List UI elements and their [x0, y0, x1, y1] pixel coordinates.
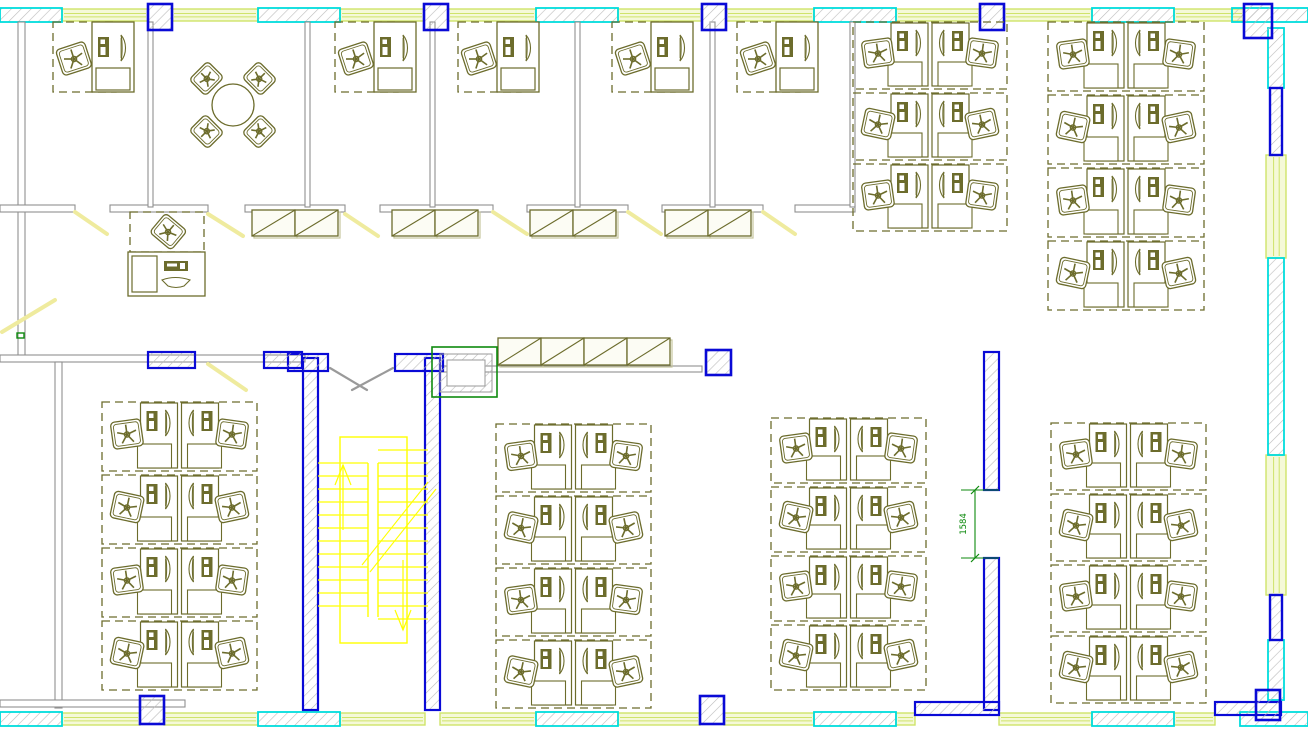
workstation-cluster-3 — [102, 402, 257, 690]
pc-tower-icon — [1093, 104, 1104, 124]
pc-tower-icon — [871, 496, 882, 516]
office-workstation-5 — [737, 22, 818, 92]
office-chair-icon — [1162, 185, 1195, 216]
door-leaf — [352, 368, 393, 390]
office-chair-icon — [1056, 111, 1091, 144]
exterior-wall-pier — [0, 712, 62, 726]
dimension-text: 1584 — [959, 513, 969, 535]
pc-tower-icon — [1096, 432, 1107, 452]
office-workstation-3 — [458, 22, 539, 92]
office-chair-icon — [1162, 39, 1195, 70]
floor-plan-drawing: 1584 — [0, 0, 1308, 736]
storage-cabinet-row — [498, 338, 672, 367]
window-glazing — [164, 713, 258, 725]
pc-tower-icon — [596, 505, 607, 525]
pc-tower-icon — [202, 484, 213, 504]
pc-tower-icon — [1096, 574, 1107, 594]
window-glazing — [724, 713, 814, 725]
round-table — [212, 84, 254, 126]
pc-tower-icon — [596, 649, 607, 669]
window-glazing — [440, 713, 536, 725]
office-chair-icon — [110, 491, 145, 524]
exterior-wall-pier — [0, 8, 62, 22]
office-chair-icon — [883, 501, 918, 534]
office-chair-icon — [1164, 581, 1197, 612]
pc-tower-icon — [1148, 177, 1159, 197]
workstation-cluster-5 — [771, 418, 926, 690]
structural-pier — [1270, 88, 1282, 155]
office-workstation-4 — [612, 22, 693, 92]
office-chair-icon — [861, 38, 894, 69]
door-swing — [208, 214, 243, 236]
office-chair-icon — [779, 571, 812, 602]
pc-tower-icon — [816, 634, 827, 654]
exterior-wall-pier — [1092, 8, 1174, 22]
pc-tower-icon — [816, 427, 827, 447]
structural-wall — [984, 352, 999, 490]
window-glazing — [448, 9, 536, 21]
office-chair-icon — [1056, 39, 1089, 70]
interior-wall — [430, 22, 435, 207]
interior-wall — [305, 22, 310, 207]
pc-tower-icon — [1096, 503, 1107, 523]
structural-column — [1256, 690, 1280, 720]
door-swing — [75, 212, 107, 234]
office-chair-icon — [1056, 185, 1089, 216]
structural-wall — [984, 558, 999, 710]
pc-tower-icon — [147, 484, 158, 504]
interior-wall — [148, 22, 153, 207]
window-glazing — [896, 713, 915, 725]
office-chair-icon — [215, 419, 248, 450]
reception-desk-group — [128, 212, 205, 296]
pc-tower-icon — [147, 411, 158, 431]
pc-tower-icon — [1151, 503, 1162, 523]
office-chair-icon — [1059, 439, 1092, 470]
interior-wall — [55, 362, 62, 708]
pc-tower-icon — [202, 630, 213, 650]
office-chair-icon — [215, 565, 248, 596]
window-glazing — [172, 9, 258, 21]
office-chair-icon — [504, 511, 539, 544]
office-chair-icon — [739, 41, 776, 76]
office-chair-icon — [504, 655, 539, 688]
structural-column — [980, 4, 1004, 30]
office-chair-icon — [1163, 651, 1198, 684]
door-swing — [628, 212, 661, 234]
window-glazing — [340, 713, 425, 725]
pc-tower-icon — [541, 649, 552, 669]
workstation-cluster-4 — [496, 424, 651, 708]
office-chair-icon — [779, 501, 814, 534]
interior-wall — [575, 22, 580, 207]
cad-floorplan-viewport[interactable]: 1584 — [0, 0, 1308, 736]
pc-tower-icon — [1148, 104, 1159, 124]
office-chair-icon — [460, 41, 497, 76]
structural-column — [1244, 4, 1272, 38]
exterior-wall-pier — [1092, 712, 1174, 726]
pc-tower-icon — [202, 557, 213, 577]
exterior-wall-pier — [258, 712, 340, 726]
pc-tower-icon — [1148, 31, 1159, 51]
pc-tower-icon — [897, 102, 908, 122]
workstation-cluster-1 — [853, 22, 1007, 231]
office-chair-icon — [861, 108, 896, 141]
structural-column — [700, 696, 724, 724]
window-glazing — [896, 9, 980, 21]
structural-column — [148, 4, 172, 30]
pc-tower-icon — [1093, 177, 1104, 197]
office-chair-icon — [964, 108, 999, 141]
pc-tower-icon — [657, 37, 668, 57]
pc-tower-icon — [782, 37, 793, 57]
dimension-annotation: 1584 — [959, 513, 969, 535]
pc-tower-icon — [897, 173, 908, 193]
office-chair-icon — [608, 511, 643, 544]
office-chair-icon — [609, 584, 642, 615]
office-chair-icon — [110, 637, 145, 670]
pc-tower-icon — [816, 496, 827, 516]
office-chair-icon — [861, 180, 894, 211]
office-chair-icon — [614, 41, 651, 76]
structural-wall — [148, 352, 195, 368]
structural-pier — [1270, 595, 1282, 640]
office-chair-icon — [1161, 257, 1196, 290]
office-chair-icon — [965, 180, 998, 211]
pc-tower-icon — [1151, 645, 1162, 665]
door-swing — [345, 214, 378, 236]
door-swing — [2, 300, 55, 332]
pc-tower-icon — [871, 565, 882, 585]
pc-tower-icon — [541, 433, 552, 453]
office-chair-icon — [1164, 439, 1197, 470]
workstation-cluster-6 — [1051, 423, 1206, 703]
window-glazing — [340, 9, 424, 21]
office-chair-icon — [214, 637, 249, 670]
interior-wall — [710, 22, 715, 207]
office-chair-icon — [150, 213, 188, 250]
window-glazing — [1004, 9, 1092, 21]
pc-tower-icon — [1093, 250, 1104, 270]
interior-wall — [18, 22, 25, 358]
pc-tower-icon — [596, 577, 607, 597]
office-chair-icon — [110, 419, 143, 450]
structural-wall — [303, 358, 318, 710]
window-glazing — [1174, 713, 1215, 725]
pc-tower-icon — [952, 31, 963, 51]
storage-cabinet-row — [392, 210, 480, 238]
pc-tower-icon — [871, 427, 882, 447]
structural-wall — [264, 352, 302, 368]
meeting-table-group — [189, 61, 277, 149]
structural-wall — [915, 702, 999, 715]
office-chair-icon — [55, 41, 92, 76]
storage-cabinet-row — [252, 210, 340, 238]
office-chair-icon — [1161, 111, 1196, 144]
exterior-wall-pier — [1268, 258, 1284, 455]
pc-tower-icon — [952, 102, 963, 122]
window-glazing — [618, 713, 700, 725]
exterior-wall-pier — [536, 8, 618, 22]
office-chair-icon — [883, 639, 918, 672]
structural-wall — [395, 354, 443, 371]
office-chair-icon — [1059, 581, 1092, 612]
office-chair-icon — [884, 433, 917, 464]
office-chair-icon — [1059, 651, 1094, 684]
office-workstation-2 — [335, 22, 416, 92]
pc-tower-icon — [1151, 432, 1162, 452]
office-chair-icon — [1059, 509, 1094, 542]
pc-tower-icon — [147, 557, 158, 577]
office-chair-icon — [884, 571, 917, 602]
pc-tower-icon — [503, 37, 514, 57]
pc-tower-icon — [541, 505, 552, 525]
structural-column — [140, 696, 164, 724]
window-glazing — [726, 9, 814, 21]
office-chair-icon — [504, 584, 537, 615]
window-glazing — [1266, 155, 1286, 258]
window-glazing — [62, 9, 148, 21]
pc-tower-icon — [1096, 645, 1107, 665]
pc-tower-icon — [1093, 31, 1104, 51]
exterior-wall-pier — [814, 8, 896, 22]
office-chair-icon — [214, 491, 249, 524]
window-glazing — [1266, 455, 1286, 595]
office-chair-icon — [779, 639, 814, 672]
window-glazing — [62, 713, 140, 725]
interior-wall — [795, 205, 855, 212]
pc-tower-icon — [147, 630, 158, 650]
interior-wall — [0, 205, 75, 212]
structural-column — [424, 4, 448, 30]
office-chair-icon — [110, 565, 143, 596]
office-chair-icon — [189, 61, 224, 96]
office-chair-icon — [779, 433, 812, 464]
office-chair-icon — [337, 41, 374, 76]
pc-tower-icon — [1151, 574, 1162, 594]
window-glazing — [618, 9, 702, 21]
storage-cabinet-row — [665, 210, 753, 238]
exterior-wall-pier — [536, 712, 618, 726]
pc-tower-icon — [871, 634, 882, 654]
office-chair-icon — [504, 440, 537, 471]
door-swing — [208, 364, 246, 390]
office-chair-icon — [1163, 509, 1198, 542]
floor-plan-render-root — [0, 4, 1308, 726]
pc-tower-icon — [541, 577, 552, 597]
exterior-wall-pier — [258, 8, 340, 22]
pc-tower-icon — [816, 565, 827, 585]
pc-tower-icon — [380, 37, 391, 57]
structural-wall — [425, 358, 440, 710]
window-glazing — [999, 713, 1092, 725]
door-swing — [493, 212, 527, 234]
pc-tower-icon — [98, 37, 109, 57]
office-chair-icon — [965, 38, 998, 69]
door-leaf — [330, 368, 367, 390]
structural-column — [702, 4, 726, 30]
office-chair-icon — [1056, 257, 1091, 290]
office-chair-icon — [608, 655, 643, 688]
service-shaft — [432, 347, 497, 397]
pc-tower-icon — [202, 411, 213, 431]
storage-cabinet-row — [530, 210, 618, 238]
structural-column — [706, 350, 731, 375]
exterior-wall-pier — [814, 712, 896, 726]
workstation-cluster-2 — [1048, 22, 1204, 310]
door-swing — [763, 212, 795, 234]
staircase — [318, 437, 436, 643]
interior-wall — [110, 205, 208, 212]
pc-tower-icon — [1148, 250, 1159, 270]
office-workstation-1 — [53, 22, 134, 92]
pc-tower-icon — [596, 433, 607, 453]
office-chair-icon — [609, 440, 642, 471]
pc-tower-icon — [897, 31, 908, 51]
pc-tower-icon — [952, 173, 963, 193]
office-chair-icon — [189, 114, 224, 149]
